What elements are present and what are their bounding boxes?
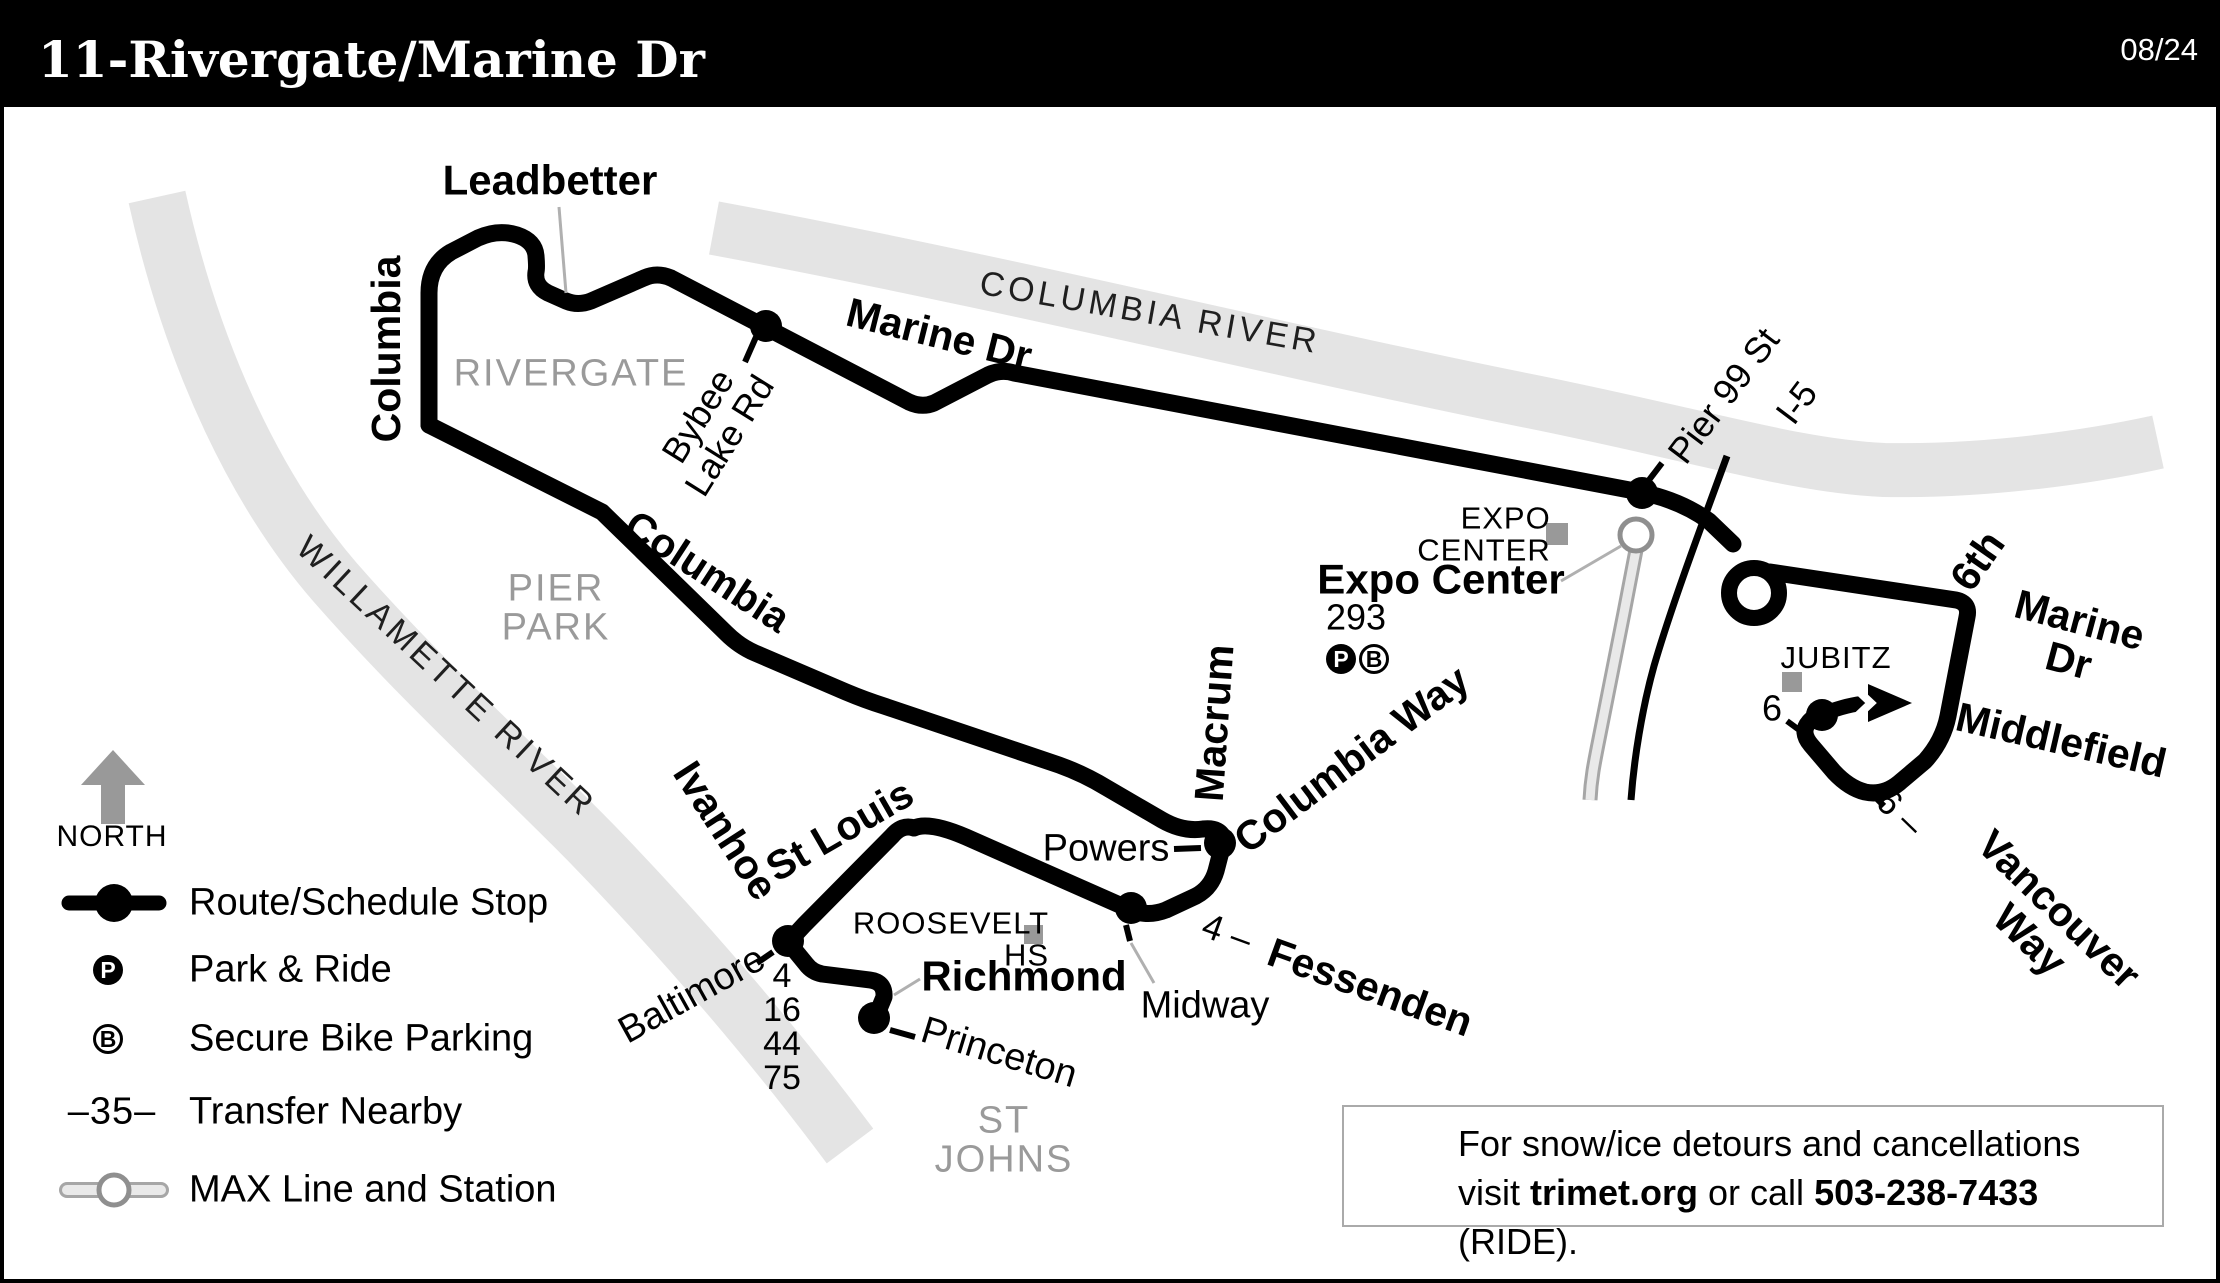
label-columbia-vert: Columbia (366, 256, 408, 443)
notice-suffix: (RIDE). (1458, 1221, 1578, 1262)
notice-mid: or call (1698, 1172, 1814, 1213)
legend-max-line: MAX Line and Station (189, 1169, 557, 1212)
park-and-ride-icon: P (1326, 644, 1356, 674)
secure-bike-parking-icon: B (1359, 644, 1389, 674)
stop-princeton-terminus (858, 1002, 890, 1034)
stop-middlefield (1806, 699, 1838, 731)
label-leadbetter: Leadbetter (443, 160, 658, 203)
label-st-johns: ST JOHNS (935, 1101, 1074, 1179)
bike-parking-legend-icon: B (93, 1024, 123, 1054)
label-transfer-column: 4 16 44 75 (763, 959, 801, 1095)
notice-text: For snow/ice detours and cancellations v… (1458, 1119, 2162, 1266)
legend-transfer-nearby: Transfer Nearby (189, 1091, 462, 1134)
route-line-columbia (429, 425, 1224, 1019)
north-arrow-icon (81, 750, 145, 824)
stop-baltimore-ivanhoe (772, 925, 804, 957)
notice-line1: For snow/ice detours and cancellations (1458, 1123, 2080, 1164)
label-rivergate: RIVERGATE (454, 355, 689, 394)
max-line-fill (1590, 550, 1636, 800)
legend-bike-parking: Secure Bike Parking (189, 1018, 533, 1061)
snow-ice-notice-box: For snow/ice detours and cancellations v… (1342, 1105, 2164, 1227)
max-station-circle (1620, 519, 1652, 551)
legend-park-ride: Park & Ride (189, 949, 392, 992)
label-pier-park: PIER PARK (502, 569, 611, 647)
label-midway: Midway (1141, 987, 1270, 1026)
label-powers: Powers (1043, 830, 1170, 869)
label-six-jubitz: 6 (1762, 691, 1782, 728)
route-stop-legend-icon (59, 881, 169, 925)
stop-pier-99 (1626, 477, 1658, 509)
transfer-nearby-legend-icon: –35– (68, 1091, 157, 1134)
max-line-legend-icon (59, 1168, 169, 1212)
north-label: NORTH (56, 820, 167, 854)
snowflake-icon-box (1358, 1123, 1450, 1215)
stop-fessenden-midway (1115, 892, 1147, 924)
park-ride-legend-icon: P (93, 955, 123, 985)
label-jubitz: JUBITZ (1780, 642, 1891, 674)
notice-phone: 503-238-7433 (1814, 1172, 2038, 1213)
legend-route-stop: Route/Schedule Stop (189, 882, 548, 925)
notice-site: trimet.org (1530, 1172, 1698, 1213)
label-num293: 293 (1326, 600, 1386, 637)
label-expo-center-stop: Expo Center (1317, 559, 1564, 602)
label-roosevelt: ROOSEVELT HS (853, 907, 1049, 970)
notice-visit: visit (1458, 1172, 1530, 1213)
route-map-page: 11-Rivergate/Marine Dr 08/24 (0, 0, 2220, 1283)
willamette-river-band (157, 197, 850, 1146)
